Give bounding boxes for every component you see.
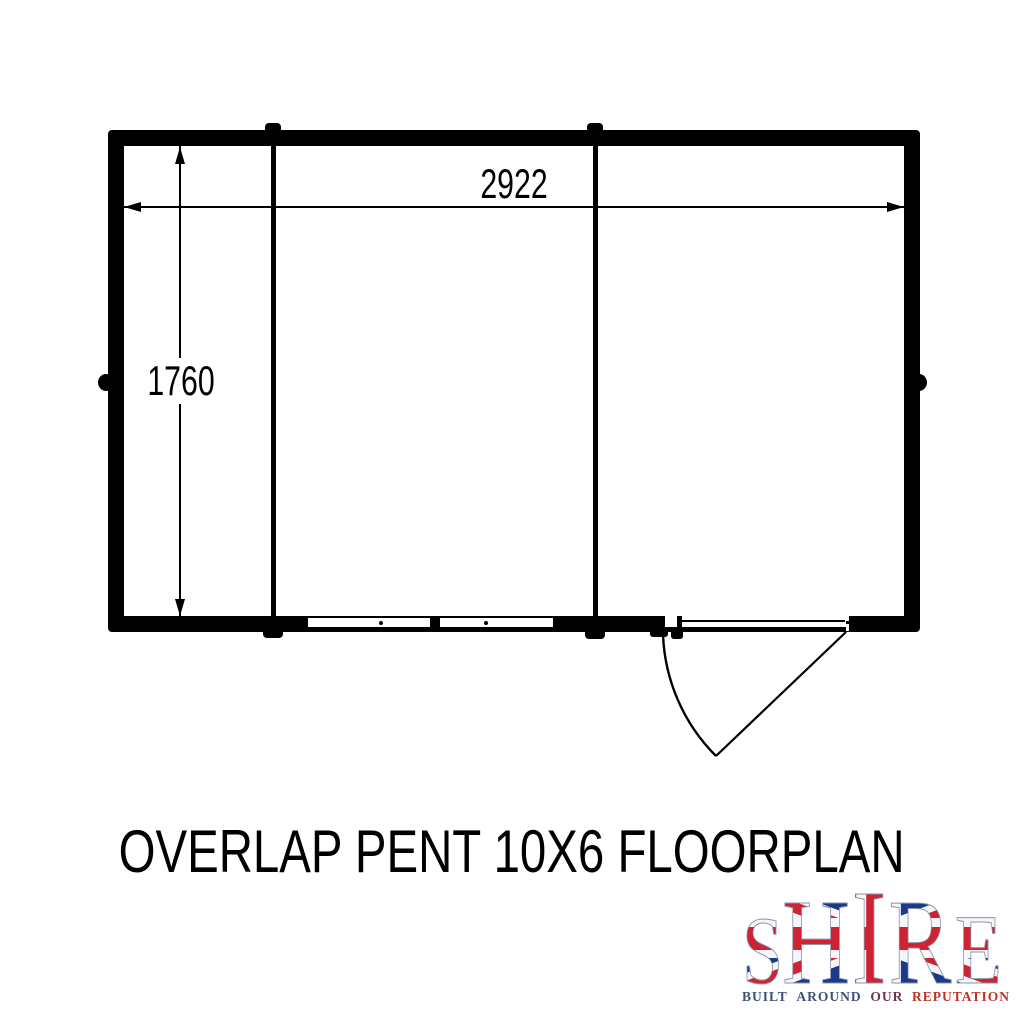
slot-2-dot	[484, 621, 488, 625]
door-closed-position	[681, 620, 845, 622]
stud-partition-right	[593, 146, 598, 616]
logo-tagline: BUILT AROUND OUR REPUTATION	[742, 990, 1010, 1004]
width-arrow-right	[887, 202, 904, 212]
left-wall-bump	[98, 374, 114, 391]
door-hinge-mark-bottom	[846, 624, 849, 631]
bottom-wall-slot-2	[440, 618, 553, 627]
logo-letter-r: R	[889, 888, 952, 988]
door-swing-arc	[663, 634, 716, 756]
tagline-word-around: AROUND	[796, 990, 861, 1004]
height-dimension-label: 1760	[123, 358, 238, 404]
height-arrow-down	[175, 599, 185, 616]
slot-1-dot	[379, 621, 383, 625]
page-title: OVERLAP PENT 10X6 FLOORPLAN	[107, 820, 916, 884]
stud-tab-top-right	[587, 123, 603, 131]
stud-tab-bottom-left	[263, 632, 283, 638]
bottom-wall-slot-1	[308, 618, 430, 627]
stud-partition-left	[271, 146, 276, 616]
logo-letter-s: S	[742, 898, 783, 988]
tagline-word-reputation: REPUTATION	[912, 990, 1010, 1004]
right-wall-bump	[911, 374, 927, 391]
width-arrow-left	[124, 202, 141, 212]
floorplan-diagram: 2922 1760 OVERLAP PENT 10X6 FLOORPLAN	[0, 0, 1024, 1024]
stud-tab-bottom-right	[585, 632, 605, 639]
door-stop-tab-2	[671, 632, 683, 639]
tagline-word-built: BUILT	[742, 990, 788, 1004]
width-dimension-label: 2922	[456, 163, 571, 205]
door-leaf-line	[716, 632, 846, 756]
shire-logo: S H I R E BUILT AROUND OUR REPUTATION	[742, 888, 1012, 1006]
logo-letter-i: I	[852, 888, 887, 988]
door-hinge-mark-top	[846, 614, 849, 621]
height-dimension-value: 1760	[141, 358, 221, 404]
height-arrow-up	[175, 147, 185, 164]
stud-tab-top-left	[265, 123, 281, 131]
door-stop-tab-1	[650, 632, 668, 637]
shire-logo-wordmark: S H I R E	[742, 888, 1012, 988]
tagline-word-our: OUR	[870, 990, 903, 1004]
logo-letter-h: H	[782, 888, 850, 988]
logo-letter-e: E	[955, 895, 1002, 988]
